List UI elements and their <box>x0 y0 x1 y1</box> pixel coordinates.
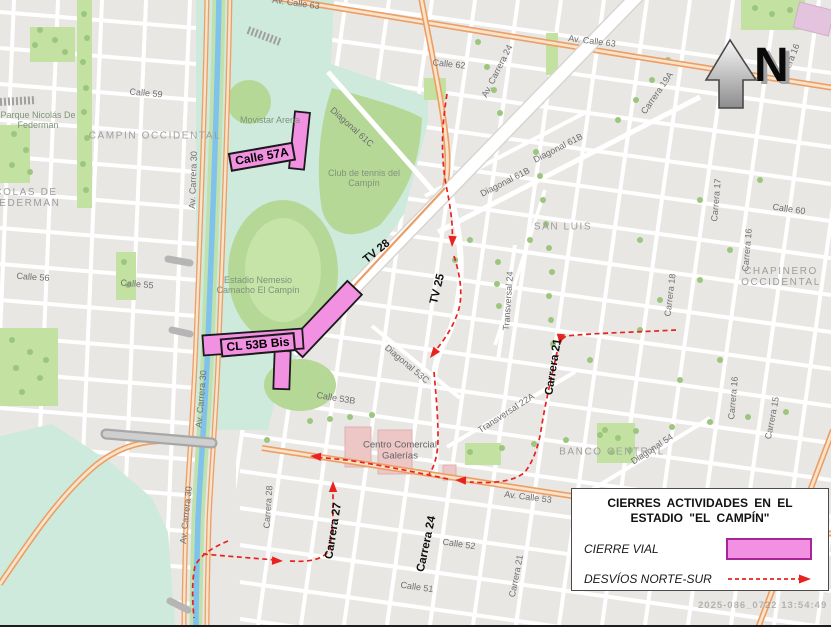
movistar-arena-grounds <box>227 80 271 124</box>
legend-title: CIERRES ACTIVIDADES EN EL ESTADIO "EL CA… <box>572 496 828 526</box>
closure-swatch <box>726 538 812 560</box>
watermark-timestamp: 2025-086_0722 13:54:49 <box>698 600 827 611</box>
map-canvas: Av. Calle 63Av. Calle 63Calle 62Av. Carr… <box>0 0 831 627</box>
legend-item-cierre-vial: CIERRE VIAL <box>572 538 828 560</box>
north-letter: N <box>754 42 789 90</box>
legend-label-cierre-vial: CIERRE VIAL <box>584 542 659 556</box>
legend: CIERRES ACTIVIDADES EN EL ESTADIO "EL CA… <box>571 488 829 591</box>
north-arrow: N <box>700 36 810 116</box>
legend-item-desvios: DESVÍOS NORTE-SUR <box>572 572 828 586</box>
detour-arrow-icon <box>726 572 812 586</box>
closure-bar-carrera-stub <box>273 351 290 390</box>
legend-label-desvios: DESVÍOS NORTE-SUR <box>584 572 712 586</box>
